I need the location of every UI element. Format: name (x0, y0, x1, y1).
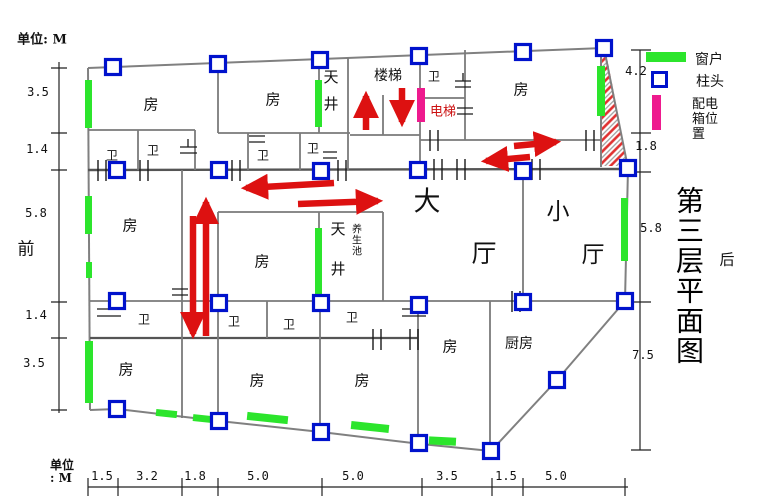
toilet-label-4: 卫 (428, 68, 440, 85)
small-hall-char-2: 厅 (582, 235, 605, 269)
column-markers (106, 41, 636, 459)
health-pool-label: 养生池 (351, 225, 363, 258)
dim-left-3: 1.4 (25, 308, 47, 322)
window-bar (429, 436, 456, 445)
unit-label-bottom: 单位 : M (50, 459, 74, 485)
column-marker (621, 161, 636, 176)
toilet-label-5: 卫 (138, 311, 150, 328)
big-hall-char-2: 厅 (471, 234, 496, 270)
dim-bottom-7: 5.0 (545, 469, 567, 483)
dim-bottom-5: 3.5 (436, 469, 458, 483)
legend-column-swatch (651, 71, 668, 88)
window-bar (597, 66, 605, 116)
column-marker (106, 60, 121, 75)
column-marker (550, 373, 565, 388)
column-marker (597, 41, 612, 56)
column-marker (516, 45, 531, 60)
page-title: 第三层平面图 (668, 186, 708, 366)
dim-bottom-1: 3.2 (136, 469, 158, 483)
column-marker (211, 57, 226, 72)
room-label-5: 房 (118, 359, 133, 380)
dimension-lines (51, 50, 651, 496)
column-marker (314, 425, 329, 440)
window-bar (247, 412, 289, 424)
legend-window-swatch (646, 52, 686, 62)
toilet-label-3: 卫 (307, 140, 319, 157)
arrow-right-upper (514, 142, 556, 146)
toilet-label-6: 卫 (228, 313, 240, 330)
elevator-label: 电梯 (430, 101, 456, 120)
dim-left-4: 3.5 (23, 356, 45, 370)
arrow-right-corridor (298, 201, 378, 204)
kitchen-label: 厨房 (505, 333, 533, 353)
small-hall-char-1: 小 (547, 192, 570, 226)
column-marker (314, 296, 329, 311)
column-marker (110, 402, 125, 417)
dim-left-1: 1.4 (26, 142, 48, 156)
window-bar (85, 80, 92, 128)
dim-bottom-6: 1.5 (495, 469, 517, 483)
legend-power-box-swatch (652, 95, 661, 130)
column-marker (412, 49, 427, 64)
lightwell-top-label: 天井 (323, 64, 340, 118)
column-marker (110, 294, 125, 309)
dim-right-3: 7.5 (632, 348, 654, 362)
dim-bottom-3: 5.0 (247, 469, 269, 483)
window-bar (85, 196, 92, 234)
legend-column-label: 柱头 (696, 71, 724, 91)
toilet-label-1: 卫 (147, 142, 159, 159)
column-marker (516, 295, 531, 310)
window-bar (621, 198, 628, 261)
dim-left-2: 5.8 (25, 206, 47, 220)
floor-plan-canvas: 单位: M 3.5 1.4 5.8 1.4 3.5 前 4.2 1.8 5.8 … (0, 0, 776, 500)
toilet-label-2: 卫 (257, 147, 269, 164)
dim-bottom-2: 1.8 (184, 469, 206, 483)
window-bar (156, 409, 178, 418)
toilet-label-8: 卫 (346, 309, 358, 326)
toilet-label-7: 卫 (283, 316, 295, 333)
big-hall-char-1: 大 (414, 180, 441, 219)
legend-power-box-label: 配电箱位置 (692, 97, 721, 142)
room-label-3: 房 (122, 215, 137, 236)
window-bar (193, 414, 212, 423)
dim-right-1: 1.8 (635, 139, 657, 153)
arrow-left-corridor (246, 183, 334, 188)
column-marker (212, 163, 227, 178)
room-label-1: 房 (265, 89, 280, 110)
column-marker (484, 444, 499, 459)
column-marker (314, 164, 329, 179)
dim-left-0: 3.5 (27, 85, 49, 99)
window-bar (86, 262, 92, 278)
room-label-0: 房 (143, 94, 158, 115)
orientation-front: 前 (18, 235, 35, 260)
column-marker (110, 163, 125, 178)
room-label-8: 房 (442, 336, 457, 357)
column-marker (412, 436, 427, 451)
orientation-back: 后 (719, 249, 734, 270)
column-marker (618, 294, 633, 309)
stairs-label: 楼梯 (374, 65, 402, 85)
window-bar (315, 228, 322, 298)
unit-label-top: 单位: M (17, 29, 67, 48)
room-label-7: 房 (354, 370, 369, 391)
room-label-2: 房 (513, 79, 528, 100)
window-bar (85, 341, 93, 403)
window-bar (351, 421, 390, 433)
window-bar (315, 80, 322, 127)
column-marker (411, 163, 426, 178)
room-label-4: 房 (254, 251, 269, 272)
column-marker (412, 298, 427, 313)
dim-right-2: 5.8 (640, 221, 662, 235)
column-marker (212, 296, 227, 311)
unit-label-bottom-line2: : M (50, 472, 74, 485)
arrow-left-upper (486, 157, 530, 161)
column-marker (212, 414, 227, 429)
lightwell-mid-label: 天井 (330, 209, 347, 289)
legend-window-label: 窗户 (695, 49, 723, 69)
power-box-marker (417, 88, 425, 122)
column-marker (516, 164, 531, 179)
dim-bottom-0: 1.5 (91, 469, 113, 483)
toilet-label-0: 卫 (106, 147, 118, 164)
dim-right-0: 4.2 (625, 64, 647, 78)
room-label-6: 房 (249, 370, 264, 391)
dim-bottom-4: 5.0 (342, 469, 364, 483)
